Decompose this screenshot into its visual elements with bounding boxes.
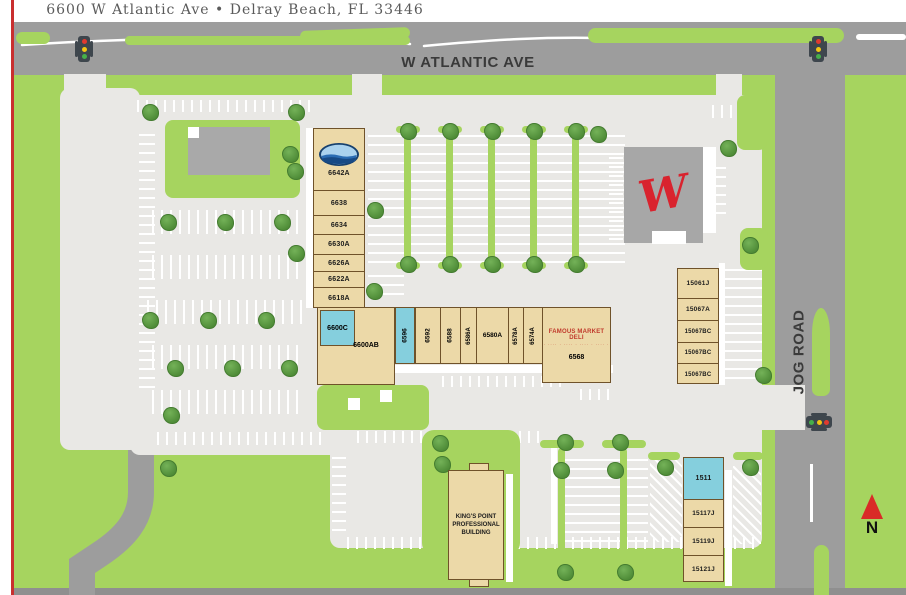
unit-15121j[interactable]: 15121J <box>684 556 723 582</box>
header-address: 6600 W Atlantic Ave • Delray Beach, FL 3… <box>20 2 450 20</box>
unit-15117j[interactable]: 15117J <box>684 500 723 528</box>
tree-icon <box>282 146 299 163</box>
sidewalk <box>506 474 513 582</box>
road-median-jog <box>812 308 830 396</box>
tree-icon <box>484 123 501 140</box>
unit-6600ab[interactable]: 6600C 6600AB <box>317 307 395 385</box>
unit-6618a[interactable]: 6618A <box>314 288 364 309</box>
unit-6642a[interactable]: 6642A <box>314 129 364 191</box>
driveway-entrance <box>716 74 742 99</box>
tree-icon <box>607 462 624 479</box>
unit-label: 6586A <box>466 327 472 345</box>
tree-icon <box>142 104 159 121</box>
utility-pad <box>348 398 360 410</box>
traffic-light-icon <box>812 36 824 62</box>
tree-icon <box>281 360 298 377</box>
median-island <box>588 28 844 43</box>
unit-label: 6638 <box>331 200 347 207</box>
unit-label: 6642A <box>328 170 350 177</box>
tree-icon <box>755 367 772 384</box>
unit-label: 15061J <box>687 280 710 287</box>
unit-15067bc[interactable]: 15067BC <box>678 343 718 364</box>
oval-beach-logo-icon <box>318 142 360 167</box>
unit-label: 6596 <box>402 328 409 342</box>
unit-6586a[interactable]: 6586A <box>460 307 477 364</box>
tree-icon <box>442 256 459 273</box>
parking-stripes <box>145 255 303 279</box>
building-notch <box>188 127 199 138</box>
tree-icon <box>526 256 543 273</box>
tree-icon <box>400 123 417 140</box>
driveway-entrance <box>352 74 382 99</box>
parking-stripes <box>332 450 346 538</box>
sidewalk <box>703 147 716 233</box>
lane-marking <box>856 34 906 40</box>
tree-icon <box>400 256 417 273</box>
parking-stripes <box>140 300 303 324</box>
walgreens-building[interactable]: W <box>624 147 703 243</box>
deli-name: FAMOUS MARKET DELI <box>543 329 610 341</box>
unit-label: 15067BC <box>685 372 712 378</box>
tree-icon <box>258 312 275 329</box>
parking-stripes <box>560 452 648 544</box>
tree-icon <box>590 126 607 143</box>
tree-icon <box>742 459 759 476</box>
tree-icon <box>287 163 304 180</box>
tree-icon <box>167 360 184 377</box>
landscape-strip <box>572 130 579 265</box>
tree-icon <box>568 256 585 273</box>
unit-6592[interactable]: 6592 <box>415 307 441 364</box>
site-plan: 6642A 6638 6634 6630A 6626A 6622A 6618A … <box>0 0 906 595</box>
unit-label: 15067BC <box>685 329 712 335</box>
unit-label: 6630A <box>328 241 350 248</box>
famous-market-deli-building[interactable]: FAMOUS MARKET DELI · ···· · ···· · ···· … <box>542 307 611 383</box>
tree-icon <box>274 214 291 231</box>
tree-icon <box>484 256 501 273</box>
tree-icon <box>142 312 159 329</box>
tree-icon <box>366 283 383 300</box>
unit-6580a[interactable]: 6580A <box>476 307 509 364</box>
sidewalk <box>306 128 313 308</box>
unit-label: 6600C <box>327 325 348 332</box>
unit-label: 1511 <box>696 475 712 482</box>
unit-label: 6626A <box>328 260 350 267</box>
unit-6574a[interactable]: 6574A <box>523 307 543 364</box>
unit-label: 15067A <box>686 306 710 313</box>
utility-pad <box>380 390 392 402</box>
tree-icon <box>526 123 543 140</box>
tree-icon <box>612 434 629 451</box>
tree-icon <box>557 434 574 451</box>
landscape-strip <box>446 130 453 265</box>
unit-15067a[interactable]: 15067A <box>678 299 718 321</box>
tree-icon <box>742 237 759 254</box>
sidewalk <box>719 263 725 385</box>
building-notch <box>652 231 686 244</box>
parking-lot-west-corridor <box>60 88 140 450</box>
tree-icon <box>617 564 634 581</box>
unit-1511[interactable]: 1511 <box>684 458 723 500</box>
tree-icon <box>163 407 180 424</box>
north-label: N <box>861 518 883 538</box>
tree-icon <box>160 460 177 477</box>
outparcel-building[interactable] <box>188 127 270 175</box>
unit-15067bc[interactable]: 15067BC <box>678 321 718 343</box>
tree-icon <box>160 214 177 231</box>
landscape-strip <box>488 130 495 265</box>
road-median-jog <box>814 545 829 595</box>
grass-island <box>317 385 429 430</box>
unit-15061j[interactable]: 15061J <box>678 269 718 299</box>
sidewalk <box>725 470 732 586</box>
median-island <box>16 32 50 44</box>
unit-15067bc[interactable]: 15067BC <box>678 364 718 385</box>
unit-6634[interactable]: 6634 <box>314 216 364 235</box>
unit-label: 15121J <box>692 566 715 573</box>
unit-label: 15117J <box>692 510 715 517</box>
unit-label: 6568 <box>569 354 585 361</box>
unit-label: 15067BC <box>685 350 712 356</box>
unit-6638[interactable]: 6638 <box>314 191 364 216</box>
building-label: KING'S POINT PROFESSIONAL BUILDING <box>452 513 500 537</box>
unit-label: 6592 <box>425 328 432 342</box>
tree-icon <box>553 462 570 479</box>
jog-road-label: JOG ROAD <box>791 300 807 405</box>
unit-label: 15119J <box>692 538 715 545</box>
tree-icon <box>432 435 449 452</box>
parking-stripes <box>724 262 762 382</box>
south-retail-strip: 1511 15117J 15119J 15121J <box>683 457 724 582</box>
tree-icon <box>200 312 217 329</box>
north-arrow-icon <box>861 494 883 519</box>
unit-6588[interactable]: 6588 <box>440 307 461 364</box>
tree-icon <box>557 564 574 581</box>
atlantic-ave-label: W ATLANTIC AVE <box>390 54 546 70</box>
unit-6622a[interactable]: 6622A <box>314 272 364 288</box>
landscape-strip <box>530 130 537 265</box>
unit-label: 6580A <box>483 332 502 339</box>
tree-icon <box>367 202 384 219</box>
unit-label: 6578A <box>513 327 519 345</box>
grass-island <box>737 95 767 150</box>
boundary-line <box>11 0 14 595</box>
east-retail-strip: 15061J 15067A 15067BC 15067BC 15067BC <box>677 268 719 384</box>
no-parking-hatch <box>733 466 761 544</box>
tree-icon <box>657 459 674 476</box>
tree-icon <box>442 123 459 140</box>
unit-label: 6634 <box>331 222 347 229</box>
unit-label: 6622A <box>328 276 350 283</box>
parking-stripes <box>150 432 328 445</box>
unit-6626a[interactable]: 6626A <box>314 255 364 272</box>
traffic-light-icon <box>78 36 90 62</box>
landscape-strip <box>404 130 411 265</box>
unit-label: 6588 <box>447 328 454 342</box>
unit-6596[interactable]: 6596 <box>395 307 415 364</box>
unit-label: 6574A <box>530 327 536 345</box>
north-retail-strip: 6642A 6638 6634 6630A 6626A 6622A 6618A <box>313 128 365 308</box>
parking-stripes <box>609 150 623 242</box>
unit-6578a[interactable]: 6578A <box>508 307 524 364</box>
kings-point-building[interactable]: KING'S POINT PROFESSIONAL BUILDING <box>448 470 504 580</box>
traffic-light-icon <box>806 416 832 428</box>
unit-6630a[interactable]: 6630A <box>314 235 364 255</box>
unit-label: 6618A <box>328 295 350 302</box>
unit-6600c[interactable]: 6600C <box>320 310 355 346</box>
walgreens-logo-icon: W <box>635 169 691 221</box>
tree-icon <box>720 140 737 157</box>
tree-icon <box>217 214 234 231</box>
tree-icon <box>568 123 585 140</box>
lane-marking <box>810 464 813 522</box>
tree-icon <box>224 360 241 377</box>
tree-icon <box>288 104 305 121</box>
unit-label: 6600AB <box>338 342 394 349</box>
unit-15119j[interactable]: 15119J <box>684 528 723 556</box>
parking-stripes <box>573 389 615 400</box>
driveway-entrance <box>64 74 106 94</box>
deli-tagline: · ···· · ···· · ···· · ···· · <box>544 342 610 347</box>
tree-icon <box>288 245 305 262</box>
